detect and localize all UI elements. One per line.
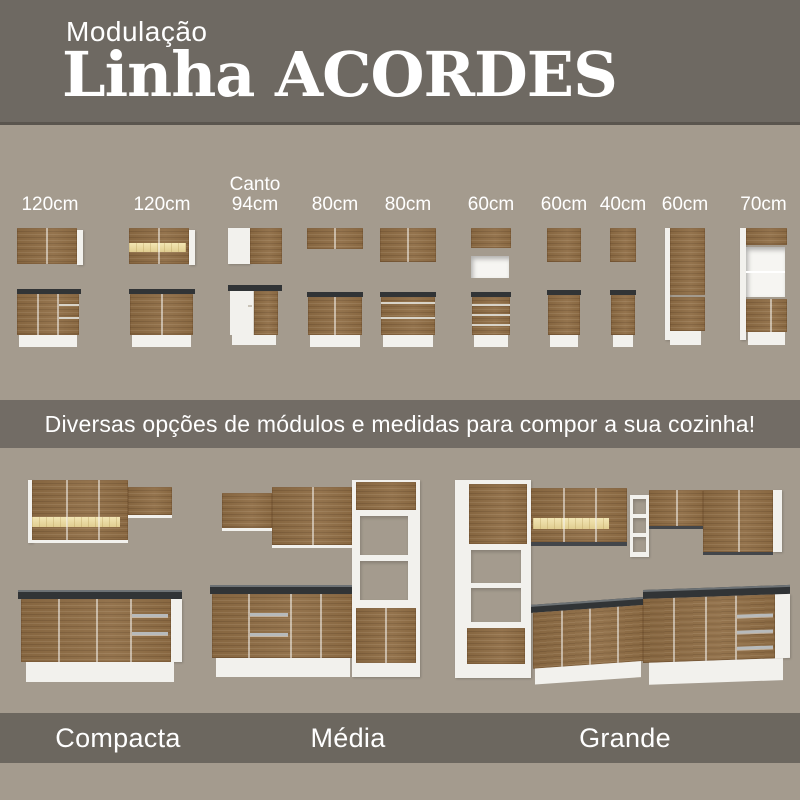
wall-cabinet-glass-icon	[129, 228, 195, 264]
module-size-label: 60cm	[451, 177, 531, 215]
narrow-wall-cabinet-icon	[610, 228, 636, 262]
module-120cm-2: 120cm	[129, 125, 195, 400]
base-drawers-icon	[380, 292, 436, 347]
module-60cm-niche: 60cm	[471, 125, 511, 400]
base-counter-icon	[18, 590, 182, 682]
tall-niche-cabinet-icon	[740, 228, 787, 345]
base-cabinet-icon	[307, 292, 363, 347]
base-drawer-unit-icon	[471, 292, 511, 347]
module-40cm: 40cm	[610, 125, 636, 400]
corner-wall-cabinet-icon	[228, 228, 282, 264]
module-size-label: 120cm	[0, 177, 103, 215]
wall-unit-glass-icon	[531, 488, 627, 546]
base-counter-left-icon	[531, 597, 643, 685]
low-wall-cabinet-icon	[471, 228, 511, 248]
wall-cabinet-icon	[649, 490, 703, 529]
module-60cm-tall: 60cm	[665, 125, 705, 400]
base-cabinet-icon	[129, 289, 195, 347]
cabinet-side-panel	[773, 490, 782, 552]
base-cabinet-icon	[547, 290, 581, 347]
module-120cm-1: 120cm	[17, 125, 83, 400]
wall-cabinet-icon	[703, 490, 773, 555]
kitchen-label-compacta: Compacta	[55, 713, 180, 763]
base-counter-icon	[210, 585, 352, 677]
tall-tower-icon	[352, 480, 420, 677]
low-wall-cabinet-icon	[307, 228, 363, 249]
kitchen-compacta	[0, 448, 200, 713]
module-size-label: 80cm	[360, 177, 456, 215]
module-canto-94cm: Canto94cm	[228, 125, 282, 400]
open-niche-icon	[471, 256, 511, 278]
header: Modulação Linha ACORDES	[0, 0, 800, 125]
kitchens-section	[0, 448, 800, 713]
banner: Diversas opções de módulos e medidas par…	[0, 400, 800, 448]
wall-cabinet-icon	[17, 228, 83, 264]
module-80cm-1: 80cm	[307, 125, 363, 400]
kitchen-label-media: Média	[310, 713, 385, 763]
wall-unit-icon	[28, 480, 128, 543]
module-size-label: 60cm	[645, 177, 725, 215]
kitchen-grande	[430, 448, 800, 713]
banner-text: Diversas opções de módulos e medidas par…	[45, 411, 756, 438]
corner-base-cabinet-icon	[228, 285, 282, 347]
wall-cabinet-icon	[222, 493, 272, 531]
page-title: Linha ACORDES	[62, 38, 617, 111]
kitchen-label-grande: Grande	[579, 713, 671, 763]
wall-cabinet-icon	[272, 487, 352, 548]
bottom-strip	[0, 763, 800, 800]
size-names-band: Compacta Média Grande	[0, 713, 800, 763]
module-70cm-tall: 70cm	[740, 125, 787, 400]
tall-tower-icon	[455, 480, 531, 678]
base-cabinet-icon	[17, 289, 83, 347]
module-size-label: 120cm	[109, 177, 215, 215]
modules-section: 120cm 120cm	[0, 125, 800, 400]
wall-cabinet-icon	[128, 487, 172, 518]
narrow-base-cabinet-icon	[610, 290, 636, 347]
tall-pantry-icon	[665, 228, 705, 345]
wall-cabinet-icon	[380, 228, 436, 262]
wall-cabinet-icon	[547, 228, 581, 262]
kitchen-media	[200, 448, 430, 713]
module-60cm-door: 60cm	[547, 125, 581, 400]
base-counter-right-icon	[643, 585, 790, 685]
module-size-label: 70cm	[720, 177, 800, 215]
module-80cm-2: 80cm	[380, 125, 436, 400]
corner-open-shelf-icon	[630, 495, 649, 557]
poster-linha-acordes: Modulação Linha ACORDES 120cm	[0, 0, 800, 800]
